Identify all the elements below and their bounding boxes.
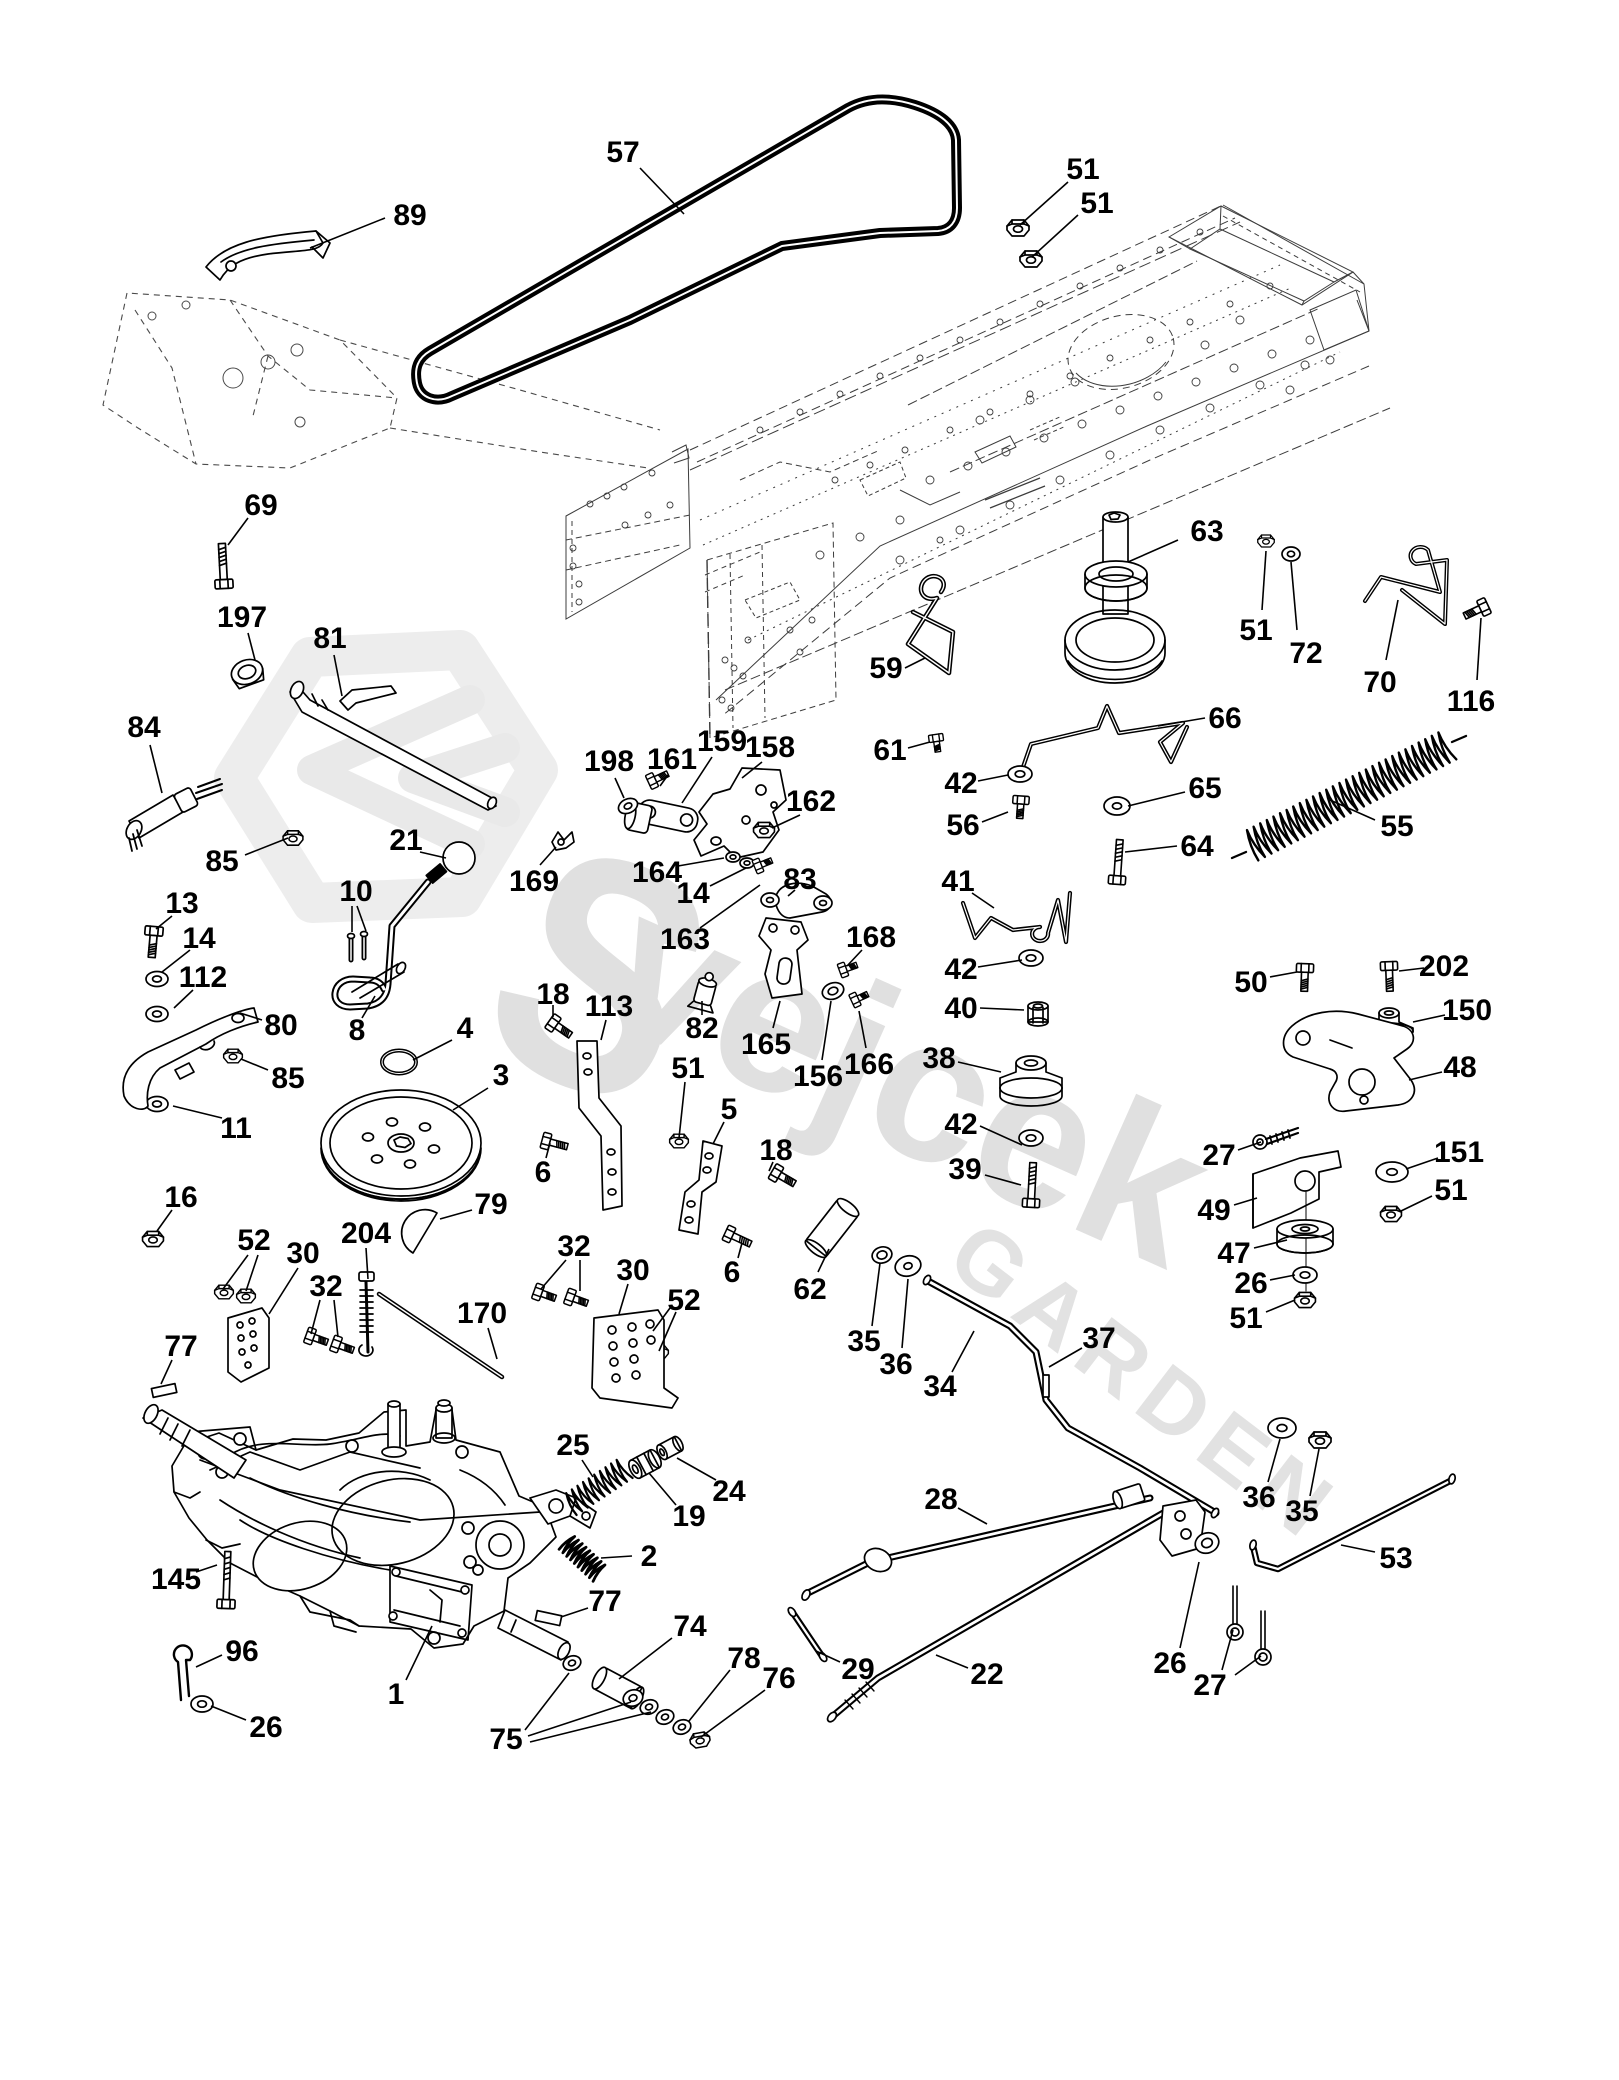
svg-text:16: 16 (164, 1181, 197, 1214)
svg-text:116: 116 (1447, 685, 1495, 718)
svg-text:82: 82 (685, 1012, 718, 1045)
svg-text:3: 3 (493, 1059, 510, 1092)
svg-text:77: 77 (588, 1585, 621, 1618)
svg-text:26: 26 (249, 1711, 282, 1744)
svg-text:168: 168 (846, 921, 896, 954)
svg-text:112: 112 (179, 961, 227, 994)
svg-text:96: 96 (225, 1635, 258, 1668)
svg-text:53: 53 (1379, 1542, 1412, 1575)
svg-text:159: 159 (697, 725, 747, 758)
svg-text:52: 52 (237, 1224, 270, 1257)
svg-text:50: 50 (1234, 966, 1267, 999)
svg-text:13: 13 (165, 887, 198, 920)
svg-text:11: 11 (220, 1112, 252, 1145)
svg-text:197: 197 (217, 601, 267, 634)
svg-text:165: 165 (741, 1028, 791, 1061)
svg-text:27: 27 (1202, 1139, 1235, 1172)
svg-text:56: 56 (946, 809, 979, 842)
svg-text:57: 57 (606, 136, 639, 169)
svg-text:202: 202 (1419, 950, 1469, 983)
svg-text:48: 48 (1443, 1051, 1476, 1084)
svg-text:18: 18 (536, 978, 569, 1011)
svg-text:77: 77 (164, 1330, 197, 1363)
svg-text:36: 36 (879, 1348, 912, 1381)
svg-text:51: 51 (1080, 187, 1113, 220)
svg-text:51: 51 (671, 1052, 704, 1085)
svg-text:2: 2 (641, 1540, 658, 1573)
svg-text:66: 66 (1208, 702, 1241, 735)
svg-text:65: 65 (1188, 772, 1221, 805)
svg-text:55: 55 (1380, 810, 1413, 843)
svg-text:78: 78 (727, 1642, 760, 1675)
svg-text:75: 75 (489, 1723, 522, 1756)
svg-text:113: 113 (585, 990, 633, 1023)
svg-text:41: 41 (941, 865, 974, 898)
svg-text:72: 72 (1289, 637, 1322, 670)
svg-text:27: 27 (1193, 1669, 1226, 1702)
svg-text:62: 62 (793, 1273, 826, 1306)
svg-text:162: 162 (786, 785, 836, 818)
svg-text:10: 10 (339, 875, 372, 908)
svg-text:18: 18 (759, 1134, 792, 1167)
svg-text:150: 150 (1442, 994, 1492, 1027)
svg-text:32: 32 (557, 1230, 590, 1263)
svg-text:6: 6 (724, 1256, 741, 1289)
svg-text:59: 59 (869, 652, 902, 685)
svg-text:83: 83 (783, 863, 816, 896)
svg-text:21: 21 (389, 824, 422, 857)
svg-text:1: 1 (388, 1678, 405, 1711)
svg-text:64: 64 (1180, 830, 1214, 863)
svg-text:32: 32 (309, 1270, 342, 1303)
svg-text:166: 166 (844, 1048, 894, 1081)
svg-text:28: 28 (924, 1483, 957, 1516)
svg-text:204: 204 (341, 1217, 391, 1250)
svg-text:49: 49 (1197, 1194, 1230, 1227)
svg-text:42: 42 (944, 1108, 977, 1141)
svg-text:69: 69 (244, 489, 277, 522)
svg-text:156: 156 (793, 1060, 843, 1093)
svg-text:14: 14 (676, 877, 710, 910)
svg-text:29: 29 (841, 1653, 874, 1686)
svg-text:47: 47 (1217, 1237, 1250, 1270)
svg-text:85: 85 (205, 845, 238, 878)
svg-text:8: 8 (349, 1014, 366, 1047)
svg-text:19: 19 (672, 1500, 705, 1533)
svg-text:85: 85 (271, 1062, 304, 1095)
svg-text:42: 42 (944, 767, 977, 800)
svg-text:5: 5 (721, 1093, 738, 1126)
svg-text:51: 51 (1239, 614, 1272, 647)
svg-text:30: 30 (616, 1254, 649, 1287)
svg-text:24: 24 (712, 1475, 746, 1508)
svg-text:39: 39 (948, 1153, 981, 1186)
svg-text:30: 30 (286, 1237, 319, 1270)
svg-text:163: 163 (660, 923, 710, 956)
svg-text:198: 198 (584, 745, 634, 778)
svg-text:76: 76 (762, 1662, 795, 1695)
svg-text:80: 80 (264, 1009, 297, 1042)
svg-text:63: 63 (1190, 515, 1223, 548)
svg-text:14: 14 (182, 922, 216, 955)
svg-text:145: 145 (151, 1563, 201, 1596)
svg-text:164: 164 (632, 856, 682, 889)
svg-text:40: 40 (944, 992, 977, 1025)
svg-text:4: 4 (457, 1012, 474, 1045)
svg-text:51: 51 (1434, 1174, 1467, 1207)
svg-text:42: 42 (944, 953, 977, 986)
svg-text:51: 51 (1066, 153, 1099, 186)
svg-text:25: 25 (556, 1429, 589, 1462)
svg-text:37: 37 (1082, 1322, 1115, 1355)
svg-text:22: 22 (970, 1658, 1003, 1691)
svg-text:38: 38 (922, 1042, 955, 1075)
svg-text:151: 151 (1434, 1136, 1484, 1169)
svg-text:36: 36 (1242, 1481, 1275, 1514)
svg-text:26: 26 (1234, 1267, 1267, 1300)
svg-text:52: 52 (667, 1284, 700, 1317)
svg-text:89: 89 (393, 199, 426, 232)
svg-text:84: 84 (127, 711, 161, 744)
svg-text:35: 35 (1285, 1495, 1318, 1528)
svg-text:70: 70 (1363, 666, 1396, 699)
svg-text:79: 79 (474, 1188, 507, 1221)
svg-text:35: 35 (847, 1325, 880, 1358)
svg-text:6: 6 (535, 1156, 552, 1189)
svg-text:169: 169 (509, 865, 559, 898)
svg-text:34: 34 (923, 1370, 957, 1403)
svg-text:161: 161 (647, 743, 697, 776)
svg-text:158: 158 (745, 731, 795, 764)
svg-text:26: 26 (1153, 1647, 1186, 1680)
svg-text:51: 51 (1229, 1302, 1262, 1335)
svg-text:61: 61 (873, 734, 906, 767)
svg-text:81: 81 (313, 622, 346, 655)
svg-text:74: 74 (673, 1610, 707, 1643)
svg-text:170: 170 (457, 1297, 507, 1330)
